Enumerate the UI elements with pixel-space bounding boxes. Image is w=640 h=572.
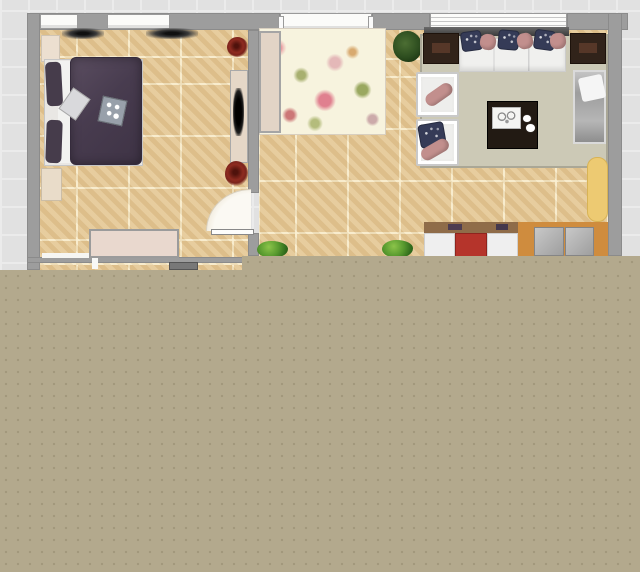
end-table-right[interactable]	[570, 33, 606, 64]
bed-pillow-top[interactable]	[45, 62, 63, 107]
door-leaf[interactable]	[211, 229, 254, 235]
hallway-floor-sliver	[40, 263, 248, 270]
bottom-door-jamb	[92, 257, 98, 269]
right-wall	[608, 13, 622, 256]
potted-plant-top[interactable]	[393, 31, 422, 62]
bedroom-window	[107, 14, 170, 29]
tray-cup-2	[526, 124, 535, 132]
cream-cabinet[interactable]	[41, 35, 60, 62]
bed-pillow-bottom[interactable]	[45, 120, 62, 164]
tray-cup-1	[523, 115, 531, 122]
floorplan-canvas[interactable]	[0, 0, 640, 572]
ceiling-lamp-left[interactable]	[62, 28, 104, 39]
black-vase[interactable]	[233, 88, 244, 136]
daybed-pillow[interactable]	[578, 74, 606, 102]
counter-clutter-1	[448, 224, 462, 230]
nightstand[interactable]	[41, 168, 62, 201]
cabinet-red[interactable]	[455, 233, 487, 258]
unrendered-area-bottom	[0, 270, 640, 572]
left-wall	[27, 13, 40, 270]
ceiling-lamp-right[interactable]	[146, 28, 198, 39]
red-flower-mid[interactable]	[225, 161, 248, 186]
yellow-board[interactable]	[587, 157, 608, 222]
stool-left[interactable]	[534, 227, 564, 256]
cabinet-white-left[interactable]	[424, 233, 455, 258]
corner-window	[40, 14, 78, 29]
coffee-table-tray[interactable]	[492, 107, 521, 129]
cabinet-white-right[interactable]	[487, 233, 518, 258]
side-panel[interactable]	[259, 31, 281, 133]
end-table-left[interactable]	[423, 33, 459, 64]
game-board[interactable]	[98, 96, 128, 127]
stool-right[interactable]	[565, 227, 594, 256]
dresser[interactable]	[89, 229, 179, 258]
appliance[interactable]	[169, 262, 198, 270]
divider-wall-upper	[248, 30, 259, 193]
bedroom-low-window	[42, 253, 89, 258]
counter-clutter-2	[496, 224, 508, 230]
red-flower-top[interactable]	[227, 37, 248, 57]
